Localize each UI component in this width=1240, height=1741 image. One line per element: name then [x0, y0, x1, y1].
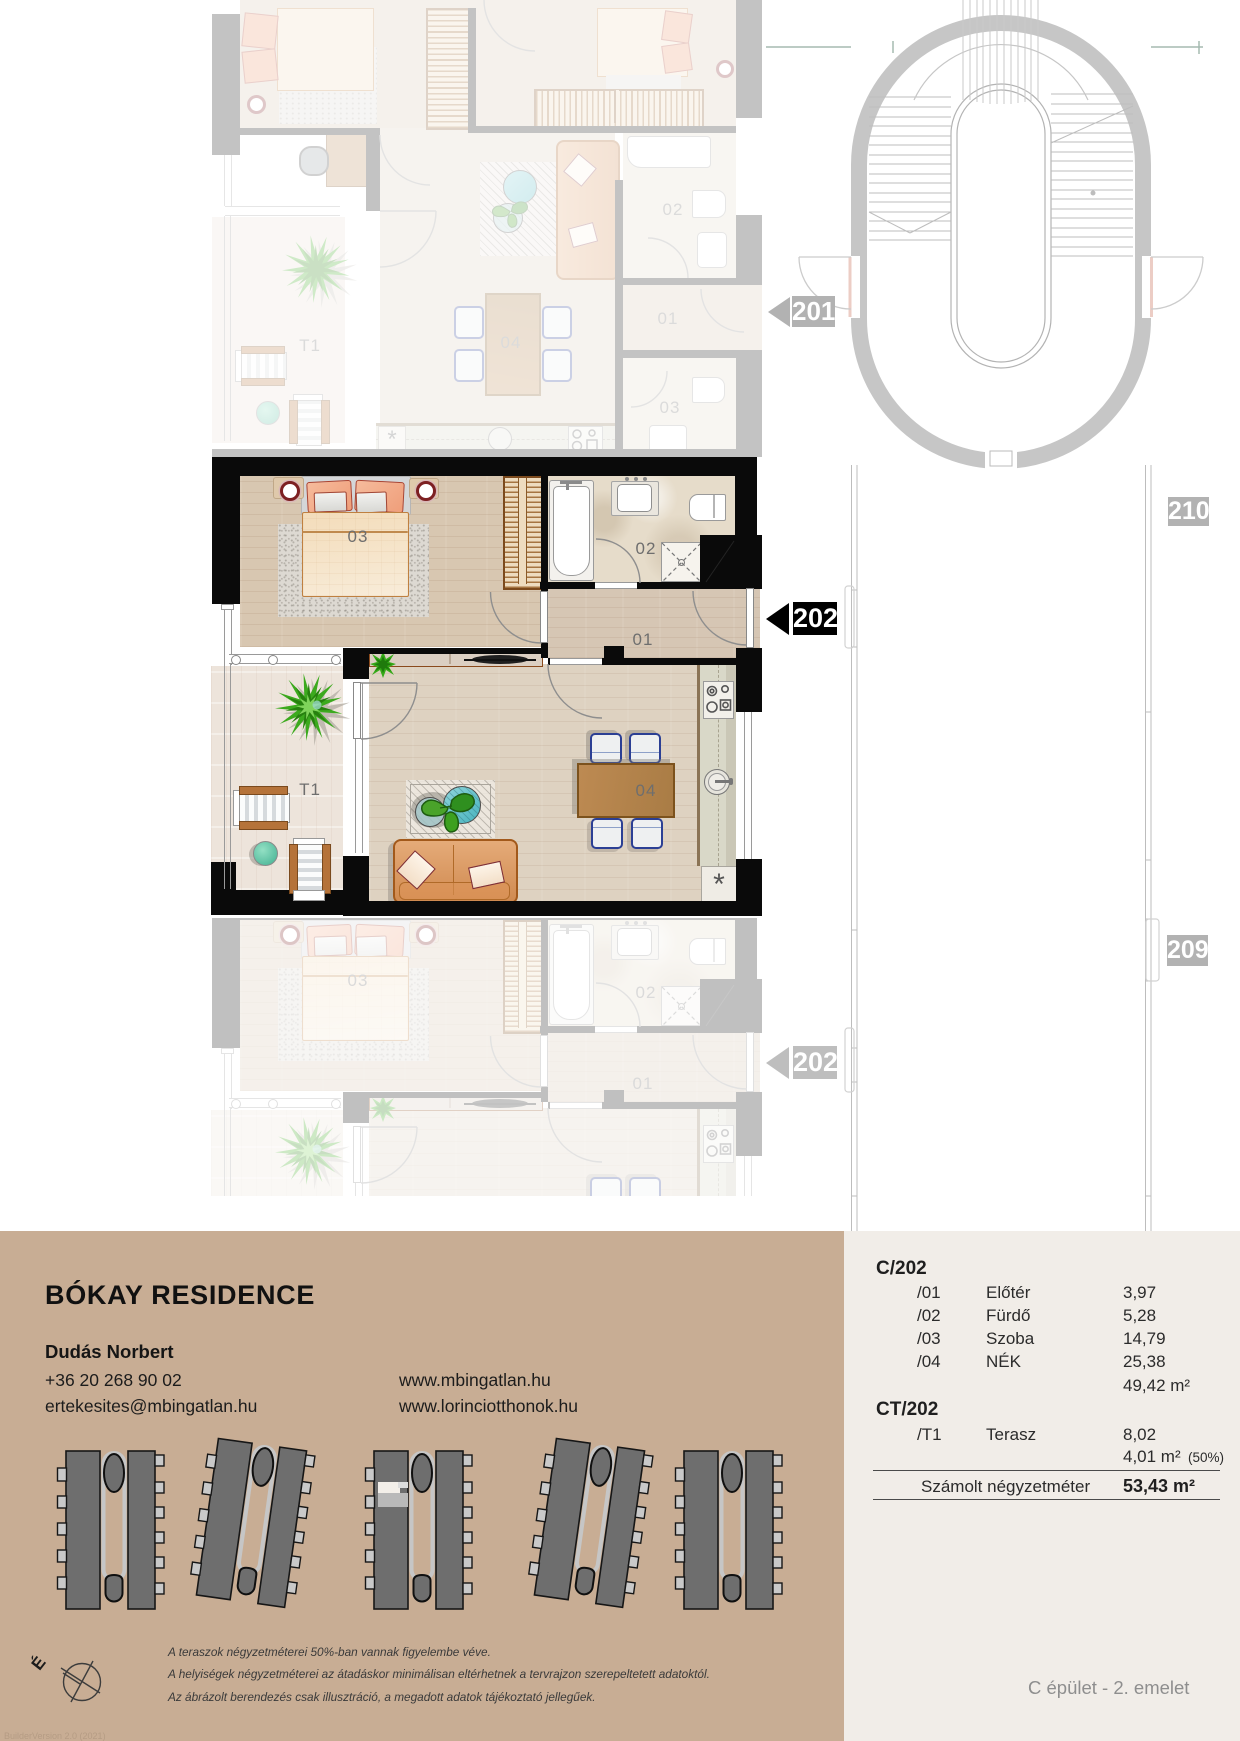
svg-text:É: É	[28, 1653, 50, 1674]
